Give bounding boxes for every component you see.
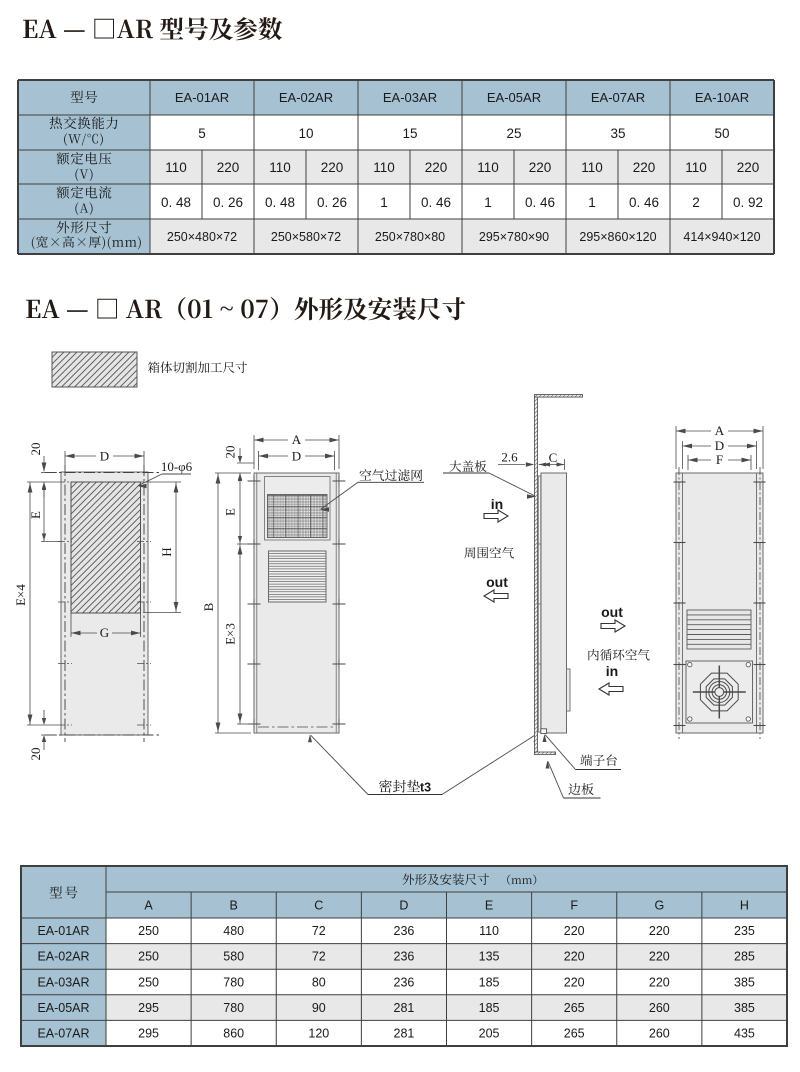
svg-text:D: D bbox=[292, 449, 301, 464]
svg-text:580: 580 bbox=[223, 950, 244, 964]
svg-text:236: 236 bbox=[394, 950, 415, 964]
svg-text:780: 780 bbox=[223, 1001, 244, 1015]
svg-text:H: H bbox=[740, 899, 749, 913]
svg-text:5: 5 bbox=[198, 126, 206, 141]
svg-text:205: 205 bbox=[479, 1027, 500, 1041]
svg-text:135: 135 bbox=[479, 950, 500, 964]
svg-text:A: A bbox=[292, 432, 302, 447]
svg-text:B: B bbox=[201, 602, 216, 611]
svg-text:B: B bbox=[230, 899, 238, 913]
svg-text:110: 110 bbox=[477, 160, 499, 175]
svg-text:D: D bbox=[100, 449, 109, 464]
svg-text:EA-01AR: EA-01AR bbox=[175, 90, 229, 105]
svg-text:780: 780 bbox=[223, 975, 244, 989]
svg-text:0. 46: 0. 46 bbox=[629, 195, 659, 210]
svg-text:EA-02AR: EA-02AR bbox=[37, 950, 89, 964]
svg-text:250: 250 bbox=[138, 924, 159, 938]
svg-text:E: E bbox=[223, 508, 238, 516]
svg-text:0. 46: 0. 46 bbox=[421, 195, 451, 210]
svg-text:20: 20 bbox=[28, 443, 43, 456]
svg-text:414×940×120: 414×940×120 bbox=[683, 230, 760, 244]
svg-text:G: G bbox=[100, 625, 109, 640]
svg-text:385: 385 bbox=[734, 975, 755, 989]
svg-text:220: 220 bbox=[564, 924, 585, 938]
svg-text:EA-03AR: EA-03AR bbox=[383, 90, 437, 105]
svg-text:250: 250 bbox=[138, 975, 159, 989]
svg-text:265: 265 bbox=[564, 1001, 585, 1015]
svg-text:0. 48: 0. 48 bbox=[161, 195, 191, 210]
svg-text:EA-05AR: EA-05AR bbox=[37, 1001, 89, 1015]
svg-text:0. 92: 0. 92 bbox=[733, 195, 763, 210]
svg-text:25: 25 bbox=[506, 126, 521, 141]
svg-text:480: 480 bbox=[223, 924, 244, 938]
svg-text:H: H bbox=[159, 547, 174, 556]
svg-text:185: 185 bbox=[479, 1001, 500, 1015]
svg-text:2: 2 bbox=[692, 195, 700, 210]
svg-text:235: 235 bbox=[734, 924, 755, 938]
svg-text:295: 295 bbox=[138, 1027, 159, 1041]
svg-text:110: 110 bbox=[479, 924, 499, 938]
svg-text:10: 10 bbox=[298, 126, 313, 141]
svg-text:250×480×72: 250×480×72 bbox=[167, 230, 237, 244]
svg-text:E: E bbox=[485, 899, 493, 913]
svg-text:F: F bbox=[570, 899, 578, 913]
svg-text:out: out bbox=[601, 604, 623, 620]
svg-text:110: 110 bbox=[165, 160, 187, 175]
svg-text:F: F bbox=[716, 452, 723, 467]
svg-text:110: 110 bbox=[685, 160, 707, 175]
svg-text:in: in bbox=[606, 663, 618, 679]
svg-text:295×780×90: 295×780×90 bbox=[479, 230, 549, 244]
svg-text:110: 110 bbox=[581, 160, 603, 175]
svg-text:D: D bbox=[715, 438, 724, 453]
svg-text:A: A bbox=[715, 423, 725, 438]
svg-text:EA-07AR: EA-07AR bbox=[591, 90, 645, 105]
svg-text:220: 220 bbox=[633, 160, 656, 175]
svg-text:72: 72 bbox=[312, 950, 326, 964]
svg-text:220: 220 bbox=[564, 975, 585, 989]
svg-text:E×3: E×3 bbox=[223, 623, 238, 645]
svg-text:185: 185 bbox=[479, 975, 500, 989]
svg-text:220: 220 bbox=[564, 950, 585, 964]
svg-text:C: C bbox=[314, 899, 323, 913]
svg-text:220: 220 bbox=[737, 160, 760, 175]
svg-text:250×580×72: 250×580×72 bbox=[271, 230, 341, 244]
svg-text:120: 120 bbox=[308, 1027, 329, 1041]
svg-text:295: 295 bbox=[138, 1001, 159, 1015]
svg-text:260: 260 bbox=[649, 1001, 670, 1015]
svg-text:EA-05AR: EA-05AR bbox=[487, 90, 541, 105]
svg-text:110: 110 bbox=[269, 160, 291, 175]
svg-text:15: 15 bbox=[402, 126, 417, 141]
svg-text:220: 220 bbox=[649, 975, 670, 989]
svg-text:EA-10AR: EA-10AR bbox=[695, 90, 749, 105]
svg-text:250: 250 bbox=[138, 950, 159, 964]
svg-text:A: A bbox=[144, 899, 153, 913]
svg-text:0. 26: 0. 26 bbox=[213, 195, 243, 210]
svg-text:D: D bbox=[399, 899, 408, 913]
svg-text:EA-03AR: EA-03AR bbox=[37, 975, 89, 989]
svg-text:20: 20 bbox=[223, 446, 238, 459]
svg-text:260: 260 bbox=[649, 1027, 670, 1041]
svg-text:10-φ6: 10-φ6 bbox=[161, 459, 193, 474]
svg-text:220: 220 bbox=[529, 160, 552, 175]
svg-text:236: 236 bbox=[394, 975, 415, 989]
svg-text:0. 46: 0. 46 bbox=[525, 195, 555, 210]
svg-text:1: 1 bbox=[484, 195, 492, 210]
svg-text:2.6: 2.6 bbox=[501, 450, 518, 465]
svg-text:0. 26: 0. 26 bbox=[317, 195, 347, 210]
svg-text:110: 110 bbox=[373, 160, 395, 175]
svg-text:1: 1 bbox=[380, 195, 388, 210]
svg-text:220: 220 bbox=[649, 924, 670, 938]
svg-text:80: 80 bbox=[312, 975, 326, 989]
svg-text:0. 48: 0. 48 bbox=[265, 195, 295, 210]
svg-text:out: out bbox=[486, 574, 508, 590]
svg-text:385: 385 bbox=[734, 1001, 755, 1015]
svg-text:t3: t3 bbox=[420, 781, 431, 795]
svg-text:281: 281 bbox=[394, 1001, 415, 1015]
svg-text:220: 220 bbox=[649, 950, 670, 964]
svg-text:EA-02AR: EA-02AR bbox=[279, 90, 333, 105]
svg-text:35: 35 bbox=[610, 126, 625, 141]
svg-text:250×780×80: 250×780×80 bbox=[375, 230, 445, 244]
svg-text:in: in bbox=[491, 496, 503, 512]
svg-text:C: C bbox=[549, 450, 558, 465]
svg-text:50: 50 bbox=[714, 126, 729, 141]
svg-text:295×860×120: 295×860×120 bbox=[579, 230, 656, 244]
svg-text:285: 285 bbox=[734, 950, 755, 964]
svg-text:72: 72 bbox=[312, 924, 326, 938]
svg-text:860: 860 bbox=[223, 1027, 244, 1041]
svg-text:265: 265 bbox=[564, 1027, 585, 1041]
svg-text:220: 220 bbox=[321, 160, 344, 175]
svg-text:G: G bbox=[654, 899, 664, 913]
svg-text:EA-01AR: EA-01AR bbox=[37, 924, 89, 938]
svg-text:435: 435 bbox=[734, 1027, 755, 1041]
svg-text:220: 220 bbox=[425, 160, 448, 175]
svg-text:20: 20 bbox=[28, 748, 43, 761]
svg-text:220: 220 bbox=[217, 160, 240, 175]
svg-text:236: 236 bbox=[394, 924, 415, 938]
svg-text:1: 1 bbox=[588, 195, 596, 210]
svg-text:90: 90 bbox=[312, 1001, 326, 1015]
svg-text:E×4: E×4 bbox=[13, 584, 28, 606]
svg-text:EA-07AR: EA-07AR bbox=[37, 1027, 89, 1041]
svg-text:281: 281 bbox=[394, 1027, 415, 1041]
